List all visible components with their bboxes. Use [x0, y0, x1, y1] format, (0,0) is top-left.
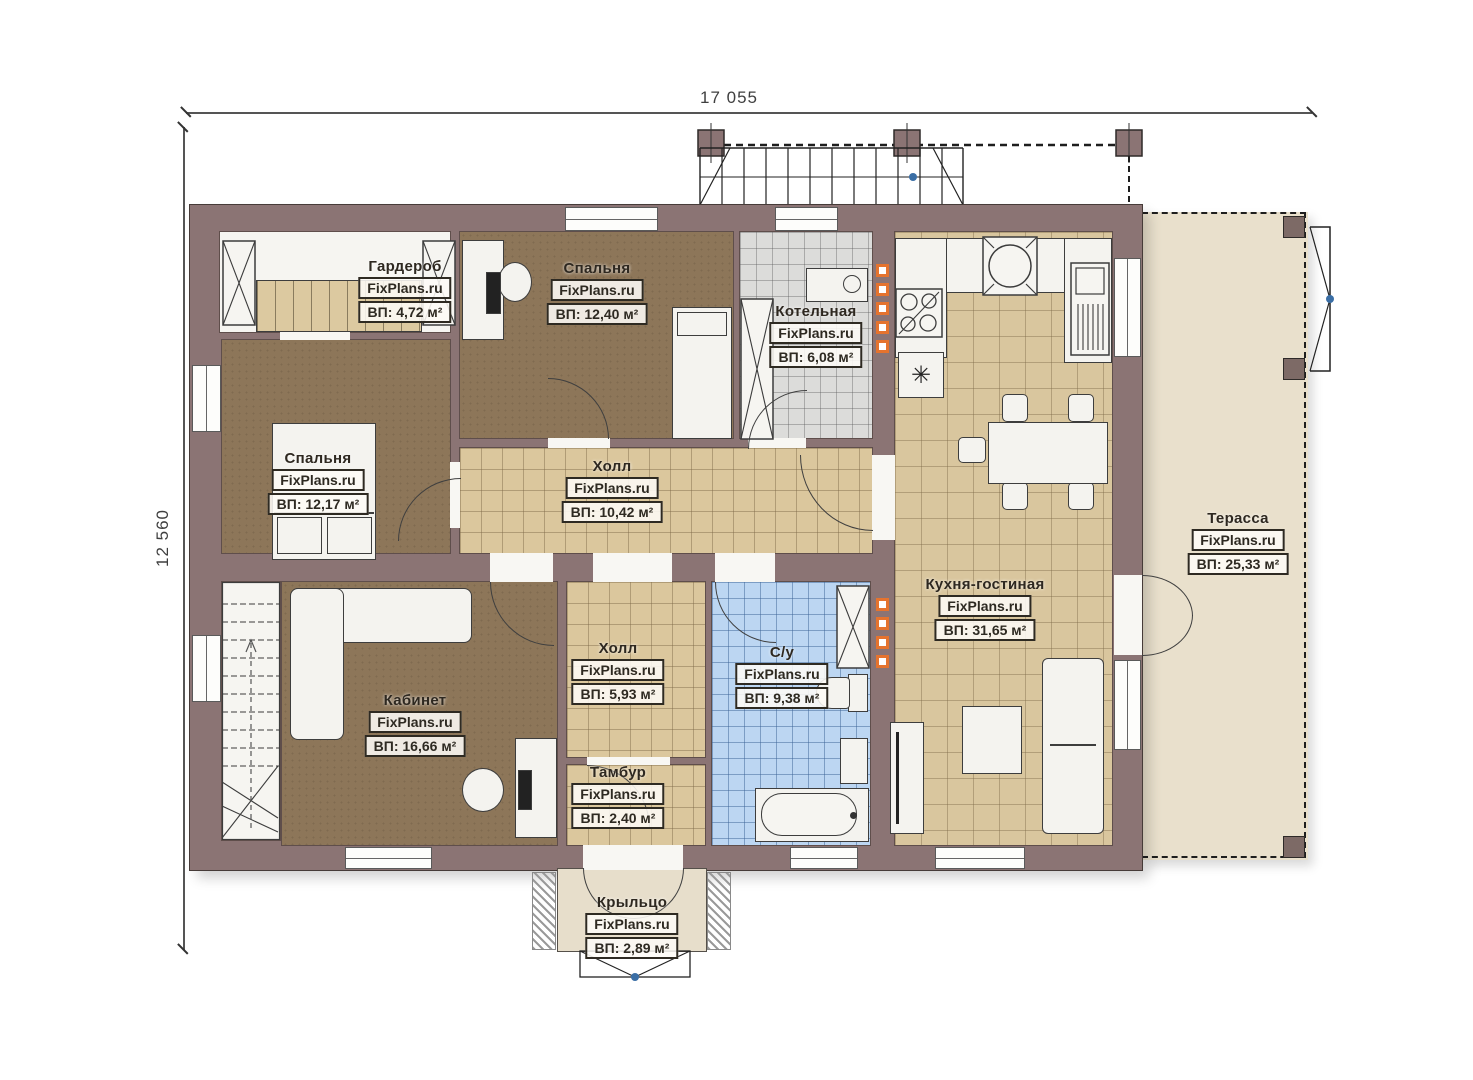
- terrace-post: [1283, 358, 1305, 380]
- watermark: FixPlans.ru: [571, 783, 664, 805]
- vent-icon: [876, 283, 889, 296]
- freezer-icon: ✳: [898, 352, 944, 398]
- watermark: FixPlans.ru: [565, 477, 658, 499]
- room-area: ВП: 2,89 м²: [586, 937, 679, 959]
- room-label-bathroom: С/у FixPlans.ru ВП: 9,38 м²: [735, 644, 828, 709]
- window: [790, 847, 858, 869]
- chair: [1068, 394, 1094, 422]
- stove-icon: [895, 288, 943, 338]
- room-label-vestibule: Тамбур FixPlans.ru ВП: 2,40 м²: [571, 764, 664, 829]
- window: [192, 635, 221, 702]
- watermark: FixPlans.ru: [1191, 529, 1284, 551]
- watermark: FixPlans.ru: [571, 659, 664, 681]
- bathroom-cabinet-icon: [836, 585, 870, 669]
- washbasin: [840, 738, 868, 784]
- watermark: FixPlans.ru: [358, 277, 451, 299]
- room-area: ВП: 12,40 м²: [547, 303, 648, 325]
- terrace-post: [1283, 836, 1305, 858]
- bathtub-drain-icon: [850, 812, 857, 819]
- room-label-hall-small: Холл FixPlans.ru ВП: 5,93 м²: [571, 640, 664, 705]
- upper-deck-stairs-icon: [690, 122, 1150, 210]
- watermark: FixPlans.ru: [938, 595, 1031, 617]
- window: [935, 847, 1025, 869]
- room-name: Гардероб: [358, 258, 451, 275]
- terrace-side-steps-icon: [1308, 225, 1336, 373]
- room-label-bedroom1: Спальня FixPlans.ru ВП: 12,17 м²: [268, 450, 369, 515]
- entry-door-opening: [583, 845, 683, 870]
- room-label-hall-main: Холл FixPlans.ru ВП: 10,42 м²: [562, 458, 663, 523]
- room-area: ВП: 5,93 м²: [572, 683, 665, 705]
- room-area: ВП: 16,66 м²: [365, 735, 466, 757]
- room-label-porch: Крыльцо FixPlans.ru ВП: 2,89 м²: [585, 894, 678, 959]
- vent-icon: [876, 302, 889, 315]
- room-area: ВП: 12,17 м²: [268, 493, 369, 515]
- floor-plan: 17 055 12 560: [0, 0, 1473, 1080]
- pillow: [677, 312, 727, 336]
- boiler-dial-icon: [843, 275, 861, 293]
- pillow: [327, 517, 372, 554]
- kitchen-sink-icon: [982, 236, 1038, 296]
- vent-icon: [876, 321, 889, 334]
- room-name: Кабинет: [365, 692, 466, 709]
- sofa: [1042, 658, 1104, 834]
- vent-icon: [876, 340, 889, 353]
- room-label-terrace: Терасса FixPlans.ru ВП: 25,33 м²: [1188, 510, 1289, 575]
- room-name: Терасса: [1188, 510, 1289, 527]
- porch-side-wall: [707, 872, 731, 950]
- terrace-door-opening: [1114, 575, 1142, 655]
- window: [345, 847, 432, 869]
- watermark: FixPlans.ru: [368, 711, 461, 733]
- porch-side-wall: [532, 872, 556, 950]
- room-name: Холл: [562, 458, 663, 475]
- sofa-cushion-divider: [1050, 744, 1096, 746]
- window: [1114, 258, 1141, 357]
- room-area: ВП: 2,40 м²: [572, 807, 665, 829]
- computer-monitor: [486, 272, 501, 314]
- bathtub-basin: [761, 793, 857, 836]
- door-opening: [280, 332, 350, 340]
- dimension-height-label: 12 560: [153, 503, 173, 573]
- chair: [1068, 482, 1094, 510]
- dining-table: [988, 422, 1108, 484]
- room-name: С/у: [735, 644, 828, 661]
- room-area: ВП: 9,38 м²: [736, 687, 829, 709]
- room-area: ВП: 31,65 м²: [935, 619, 1036, 641]
- dimension-line-top: [186, 112, 1312, 114]
- window: [775, 207, 838, 231]
- vent-icon: [876, 617, 889, 630]
- room-area: ВП: 6,08 м²: [770, 346, 863, 368]
- toilet-tank: [848, 674, 868, 712]
- window: [192, 365, 221, 432]
- room-label-kitchen: Кухня-гостиная FixPlans.ru ВП: 31,65 м²: [925, 576, 1044, 641]
- room-name: Кухня-гостиная: [925, 576, 1044, 593]
- staircase-icon: [222, 582, 280, 840]
- vent-icon: [876, 598, 889, 611]
- room-label-bedroom2: Спальня FixPlans.ru ВП: 12,40 м²: [547, 260, 648, 325]
- tv-icon: [896, 732, 899, 824]
- window: [1114, 660, 1141, 750]
- vent-icon: [876, 264, 889, 277]
- watermark: FixPlans.ru: [271, 469, 364, 491]
- room-name: Тамбур: [571, 764, 664, 781]
- coffee-table: [962, 706, 1022, 774]
- chair: [1002, 482, 1028, 510]
- closet-icon: [222, 240, 256, 326]
- office-chair: [462, 768, 504, 812]
- room-area: ВП: 10,42 м²: [562, 501, 663, 523]
- room-name: Спальня: [268, 450, 369, 467]
- watermark: FixPlans.ru: [585, 913, 678, 935]
- chair: [1002, 394, 1028, 422]
- door-opening: [490, 553, 553, 582]
- door-opening: [715, 553, 775, 582]
- vent-icon: [876, 636, 889, 649]
- room-label-boiler: Котельная FixPlans.ru ВП: 6,08 м²: [769, 303, 862, 368]
- vent-icon: [876, 655, 889, 668]
- room-name: Крыльцо: [585, 894, 678, 911]
- room-area: ВП: 4,72 м²: [359, 301, 452, 323]
- room-name: Холл: [571, 640, 664, 657]
- room-name: Котельная: [769, 303, 862, 320]
- computer-monitor: [518, 770, 532, 810]
- dimension-line-left: [183, 127, 185, 950]
- room-name: Спальня: [547, 260, 648, 277]
- dimension-width-label: 17 055: [700, 88, 758, 108]
- room-label-office: Кабинет FixPlans.ru ВП: 16,66 м²: [365, 692, 466, 757]
- sofa-corner-side: [290, 588, 344, 740]
- fridge-icon: [1070, 262, 1110, 356]
- chair: [958, 437, 986, 463]
- pillow: [277, 517, 322, 554]
- door-opening: [872, 455, 895, 540]
- window: [565, 207, 658, 231]
- door-opening: [593, 553, 672, 582]
- watermark: FixPlans.ru: [769, 322, 862, 344]
- door-opening: [548, 438, 610, 448]
- office-chair: [498, 262, 532, 302]
- terrace-post: [1283, 216, 1305, 238]
- watermark: FixPlans.ru: [735, 663, 828, 685]
- room-label-wardrobe: Гардероб FixPlans.ru ВП: 4,72 м²: [358, 258, 451, 323]
- watermark: FixPlans.ru: [550, 279, 643, 301]
- room-area: ВП: 25,33 м²: [1188, 553, 1289, 575]
